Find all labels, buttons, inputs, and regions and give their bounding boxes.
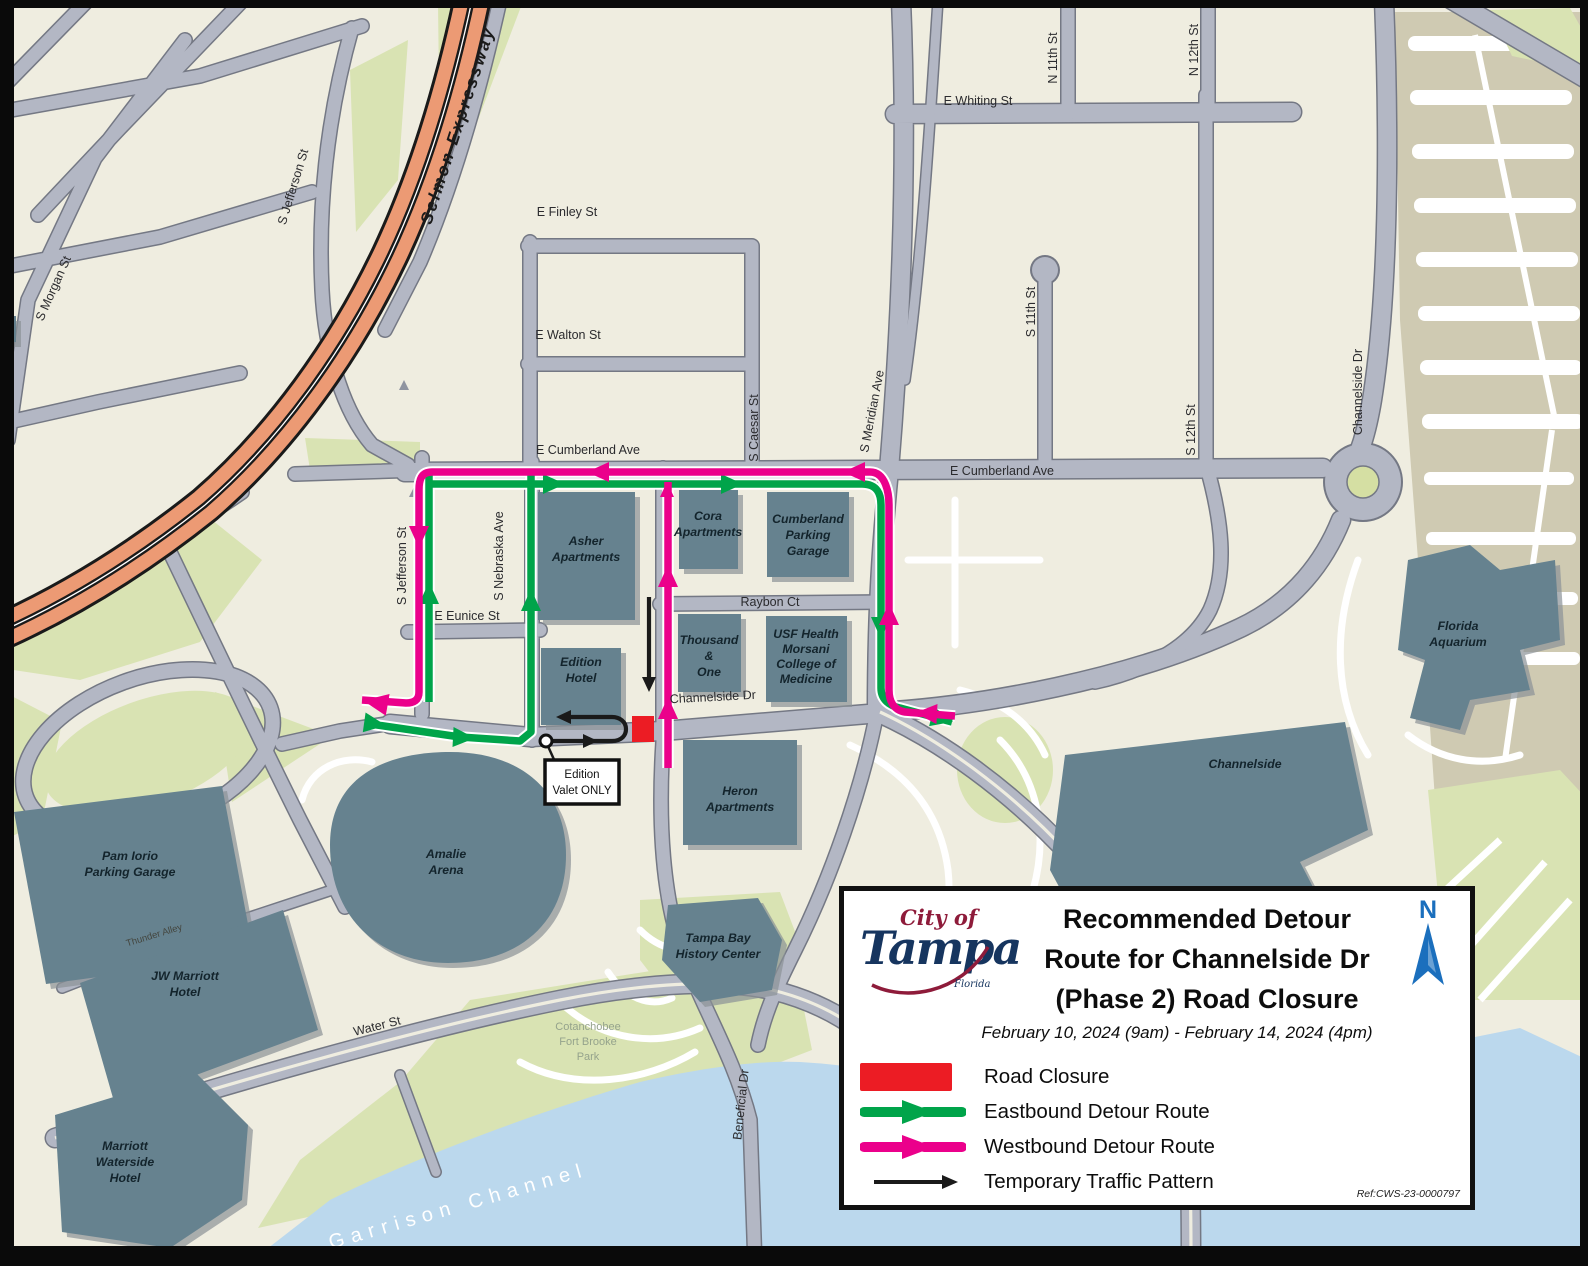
bld-label: Cumberland bbox=[772, 512, 844, 526]
bld-label: History Center bbox=[676, 947, 762, 961]
bld-label: Channelside bbox=[1208, 757, 1281, 771]
north-arrow-icon bbox=[1406, 921, 1450, 989]
roundabout-island bbox=[1347, 466, 1379, 498]
temporary-arrow-swatch bbox=[860, 1172, 966, 1192]
reference-number: Ref:CWS-23-0000797 bbox=[1357, 1188, 1460, 1200]
callout-line: Valet ONLY bbox=[552, 785, 611, 797]
north-indicator: N bbox=[1402, 899, 1454, 994]
callout-line: Edition bbox=[564, 769, 599, 781]
legend-title-line: Route for Channelside Dr bbox=[1004, 939, 1410, 979]
svg-text:Edition: Edition bbox=[564, 769, 599, 781]
street-label-e-finley-st: E Finley St bbox=[537, 205, 598, 219]
city-of-tampa-logo: City of Tampa Florida bbox=[858, 903, 1008, 1013]
svg-text:Channelside: Channelside bbox=[1208, 757, 1281, 771]
street-label-s-11th-st: S 11th St bbox=[1024, 286, 1038, 337]
road-closure-swatch bbox=[860, 1063, 952, 1091]
legend-title-line: Recommended Detour bbox=[1004, 899, 1410, 939]
bld-label: Parking bbox=[785, 528, 831, 542]
bld-label: USF Health bbox=[773, 627, 839, 641]
bld-label: Thousand bbox=[680, 633, 739, 647]
valet-callout: Edition Valet ONLY bbox=[545, 760, 619, 804]
bld-label: Hotel bbox=[110, 1171, 141, 1185]
legend-item-label: Eastbound Detour Route bbox=[984, 1100, 1210, 1124]
street-label-raybon-ct: Raybon Ct bbox=[740, 595, 800, 609]
street-label-e-cumberland-ave-e: E Cumberland Ave bbox=[950, 464, 1054, 478]
bld-label: Florida bbox=[1438, 619, 1479, 633]
street-label-s-jefferson-st: S Jefferson St bbox=[395, 526, 409, 605]
logo-florida-text: Florida bbox=[954, 979, 991, 990]
street-label-e-walton-st: E Walton St bbox=[535, 328, 601, 342]
legend-title: Recommended Detour Route for Channelside… bbox=[1004, 899, 1410, 1019]
park-label-line: Fort Brooke bbox=[559, 1036, 616, 1048]
svg-text:USF HealthMorsaniCollege ofMed: USF HealthMorsaniCollege ofMedicine bbox=[773, 627, 839, 686]
bld-label: Hotel bbox=[566, 671, 597, 685]
valet-point-marker bbox=[540, 735, 552, 747]
legend-items: Road Closure Eastbound Detour Route West… bbox=[860, 1059, 1454, 1199]
north-label: N bbox=[1402, 899, 1454, 921]
bld-label: Asher bbox=[568, 534, 605, 548]
bld-label: Apartments bbox=[551, 550, 620, 564]
westbound-arrow-swatch bbox=[860, 1134, 966, 1160]
bld-label: & bbox=[705, 649, 714, 663]
street-label-s-caesar-st: S Caesar St bbox=[747, 394, 761, 462]
bld-label: Hotel bbox=[170, 985, 201, 999]
street-label-n-11th-st: N 11th St bbox=[1046, 32, 1060, 84]
bld-label: Amalie bbox=[425, 847, 466, 861]
street-label-e-cumberland-ave-w: E Cumberland Ave bbox=[536, 443, 640, 457]
street-label-s-12th-st: S 12th St bbox=[1184, 404, 1198, 456]
legend-title-line: (Phase 2) Road Closure bbox=[1004, 979, 1410, 1019]
bld-label: Heron bbox=[722, 784, 758, 798]
bld-label: College of bbox=[776, 657, 837, 671]
bld-label: Aquarium bbox=[1428, 635, 1486, 649]
svg-text:Valet ONLY: Valet ONLY bbox=[552, 785, 611, 797]
bld-label: Tampa Bay bbox=[685, 931, 751, 945]
bld-label: Cora bbox=[694, 509, 722, 523]
street-label-s-nebraska-ave: S Nebraska Ave bbox=[492, 511, 506, 600]
bld-label: Pam Iorio bbox=[102, 849, 159, 863]
street-label-n-12th-st: N 12th St bbox=[1187, 23, 1201, 76]
legend-item-westbound: Westbound Detour Route bbox=[860, 1129, 1454, 1164]
legend-item-label: Temporary Traffic Pattern bbox=[984, 1170, 1214, 1194]
legend-item-road-closure: Road Closure bbox=[860, 1059, 1454, 1094]
street-label-e-eunice-st: E Eunice St bbox=[434, 609, 500, 623]
bld-label: Marriott bbox=[102, 1139, 149, 1153]
bld-label: Morsani bbox=[782, 642, 830, 656]
bld-label: JW Marriott bbox=[151, 969, 220, 983]
detour-map-page: Edition Valet ONLY Selmon Expressway S M… bbox=[0, 0, 1588, 1266]
legend-item-eastbound: Eastbound Detour Route bbox=[860, 1094, 1454, 1129]
bld-label: Garage bbox=[787, 544, 830, 558]
bld-label: Apartments bbox=[705, 800, 774, 814]
street-label-e-whiting-st: E Whiting St bbox=[944, 94, 1013, 108]
road-closure-marker bbox=[632, 716, 654, 742]
legend-date-range: February 10, 2024 (9am) - February 14, 2… bbox=[924, 1023, 1430, 1043]
park-label-line: Cotanchobee bbox=[555, 1021, 620, 1033]
bld-label: Waterside bbox=[96, 1155, 155, 1169]
bld-label: One bbox=[697, 665, 721, 679]
bld-label: Edition bbox=[560, 655, 602, 669]
legend-panel: City of Tampa Florida Recommended Detour… bbox=[839, 886, 1475, 1210]
bld-label: Arena bbox=[428, 863, 464, 877]
bld-label: Parking Garage bbox=[85, 865, 176, 879]
eastbound-arrow-swatch bbox=[860, 1099, 966, 1125]
bld-label: Apartments bbox=[673, 525, 742, 539]
bld-label: Medicine bbox=[780, 672, 833, 686]
street-label-channelside-dr-n: Channelside Dr bbox=[1351, 349, 1365, 435]
park-label-line: Park bbox=[577, 1051, 600, 1063]
legend-item-label: Westbound Detour Route bbox=[984, 1135, 1215, 1159]
legend-item-label: Road Closure bbox=[984, 1065, 1109, 1089]
